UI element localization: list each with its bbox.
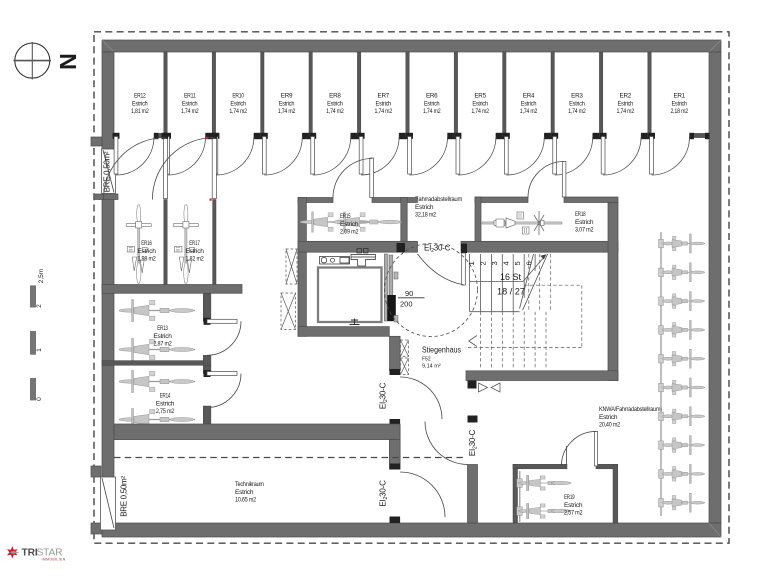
svg-text:2,09 m2: 2,09 m2 — [340, 229, 359, 236]
svg-text:2: 2 — [36, 304, 43, 308]
svg-text:ER19: ER19 — [564, 494, 575, 501]
svg-text:200: 200 — [400, 300, 413, 309]
svg-text:2,5m: 2,5m — [38, 268, 45, 283]
svg-text:ER2: ER2 — [620, 93, 632, 100]
svg-text:2,75 m2: 2,75 m2 — [156, 408, 175, 415]
svg-text:1: 1 — [467, 261, 476, 265]
svg-text:16 St: 16 St — [500, 272, 521, 283]
svg-text:Estrich: Estrich — [599, 414, 618, 421]
svg-text:EI230-C: EI230-C — [379, 382, 389, 409]
svg-text:Estrich: Estrich — [156, 400, 175, 407]
svg-text:ER18: ER18 — [575, 211, 586, 218]
svg-text:ER11: ER11 — [184, 93, 196, 100]
svg-text:ER8: ER8 — [329, 93, 341, 100]
svg-text:ER17: ER17 — [189, 240, 200, 247]
svg-text:ER6: ER6 — [426, 93, 438, 100]
svg-text:ER7: ER7 — [378, 93, 390, 100]
svg-text:1,81 m2: 1,81 m2 — [131, 108, 149, 115]
svg-text:Estrich: Estrich — [618, 100, 634, 107]
svg-text:Estrich: Estrich — [230, 100, 246, 107]
svg-text:9,14 m²: 9,14 m² — [422, 364, 441, 370]
svg-text:Estrich: Estrich — [340, 221, 359, 228]
svg-text:18 / 27: 18 / 27 — [497, 287, 525, 298]
svg-text:90: 90 — [405, 289, 413, 298]
svg-text:10,65 m2: 10,65 m2 — [235, 497, 257, 504]
svg-text:ER10: ER10 — [232, 93, 244, 100]
svg-text:6: 6 — [525, 261, 534, 265]
svg-text:1,74 m2: 1,74 m2 — [423, 108, 441, 115]
svg-text:2,87 m2: 2,87 m2 — [153, 341, 172, 348]
svg-text:Estrich: Estrich — [569, 100, 585, 107]
svg-text:Estrich: Estrich — [327, 100, 343, 107]
svg-text:1,98 m2: 1,98 m2 — [137, 256, 156, 263]
svg-text:Estrich: Estrich — [424, 100, 440, 107]
svg-text:4: 4 — [502, 261, 511, 265]
svg-text:ER3: ER3 — [571, 93, 583, 100]
svg-text:EI230-C: EI230-C — [379, 480, 389, 507]
svg-text:TRI: TRI — [22, 548, 38, 559]
svg-text:1,74 m2: 1,74 m2 — [326, 108, 344, 115]
svg-text:3,07 m2: 3,07 m2 — [575, 227, 594, 234]
svg-text:Estrich: Estrich — [137, 248, 156, 255]
svg-text:Estrich: Estrich — [472, 100, 488, 107]
svg-text:Estrich: Estrich — [564, 502, 583, 509]
svg-text:EI230-C: EI230-C — [424, 244, 451, 255]
svg-text:1,74 m2: 1,74 m2 — [181, 108, 199, 115]
svg-text:F52: F52 — [422, 357, 431, 363]
svg-text:1,74 m2: 1,74 m2 — [471, 108, 489, 115]
svg-text:ER9: ER9 — [281, 93, 293, 100]
svg-text:ER16: ER16 — [141, 240, 152, 247]
svg-text:ER5: ER5 — [474, 93, 486, 100]
svg-text:ER15: ER15 — [340, 213, 351, 220]
svg-text:1,74 m2: 1,74 m2 — [375, 108, 393, 115]
svg-text:Estrich: Estrich — [235, 489, 254, 496]
svg-text:Estrich: Estrich — [132, 100, 148, 107]
svg-text:Fahrradabstellraum: Fahrradabstellraum — [415, 196, 462, 203]
svg-text:Technikraum: Technikraum — [235, 481, 264, 488]
svg-text:20,40 m2: 20,40 m2 — [599, 422, 621, 429]
svg-text:2,18 m2: 2,18 m2 — [670, 108, 688, 115]
svg-text:5: 5 — [513, 261, 522, 265]
svg-text:ER4: ER4 — [523, 93, 535, 100]
svg-text:1,74 m2: 1,74 m2 — [520, 108, 538, 115]
svg-text:Estrich: Estrich — [521, 100, 537, 107]
svg-text:1,74 m2: 1,74 m2 — [229, 108, 247, 115]
svg-text:Estrich: Estrich — [182, 100, 198, 107]
svg-text:KNWA/Fahrradabstellraum): KNWA/Fahrradabstellraum) — [599, 406, 662, 413]
svg-text:1,74 m2: 1,74 m2 — [617, 108, 635, 115]
svg-text:Stiegenhaus: Stiegenhaus — [422, 346, 461, 355]
svg-text:IMMOBILIEN: IMMOBILIEN — [42, 557, 66, 561]
svg-text:Estrich: Estrich — [575, 219, 594, 226]
svg-text:BRE 0,50m²: BRE 0,50m² — [120, 476, 129, 517]
svg-text:N: N — [55, 53, 81, 70]
svg-text:Estrich: Estrich — [153, 333, 172, 340]
svg-text:Estrich: Estrich — [279, 100, 295, 107]
svg-text:32,18 m2: 32,18 m2 — [415, 212, 437, 219]
svg-text:2: 2 — [479, 261, 488, 265]
svg-text:EI230-C: EI230-C — [468, 429, 478, 456]
svg-text:1,74 m2: 1,74 m2 — [278, 108, 296, 115]
svg-text:Estrich: Estrich — [415, 204, 434, 211]
svg-text:3: 3 — [490, 261, 499, 265]
svg-text:Estrich: Estrich — [185, 248, 204, 255]
svg-text:ER1: ER1 — [673, 93, 685, 100]
svg-text:Estrich: Estrich — [671, 100, 687, 107]
svg-text:ER12: ER12 — [134, 93, 146, 100]
svg-text:1,82 m2: 1,82 m2 — [185, 256, 204, 263]
svg-text:1: 1 — [36, 348, 43, 352]
svg-text:0: 0 — [36, 397, 43, 401]
svg-text:1,74 m2: 1,74 m2 — [568, 108, 586, 115]
svg-text:ER13: ER13 — [157, 325, 168, 332]
svg-text:Estrich: Estrich — [376, 100, 392, 107]
svg-text:ER14: ER14 — [160, 393, 171, 400]
svg-text:2,57 m2: 2,57 m2 — [564, 510, 583, 517]
